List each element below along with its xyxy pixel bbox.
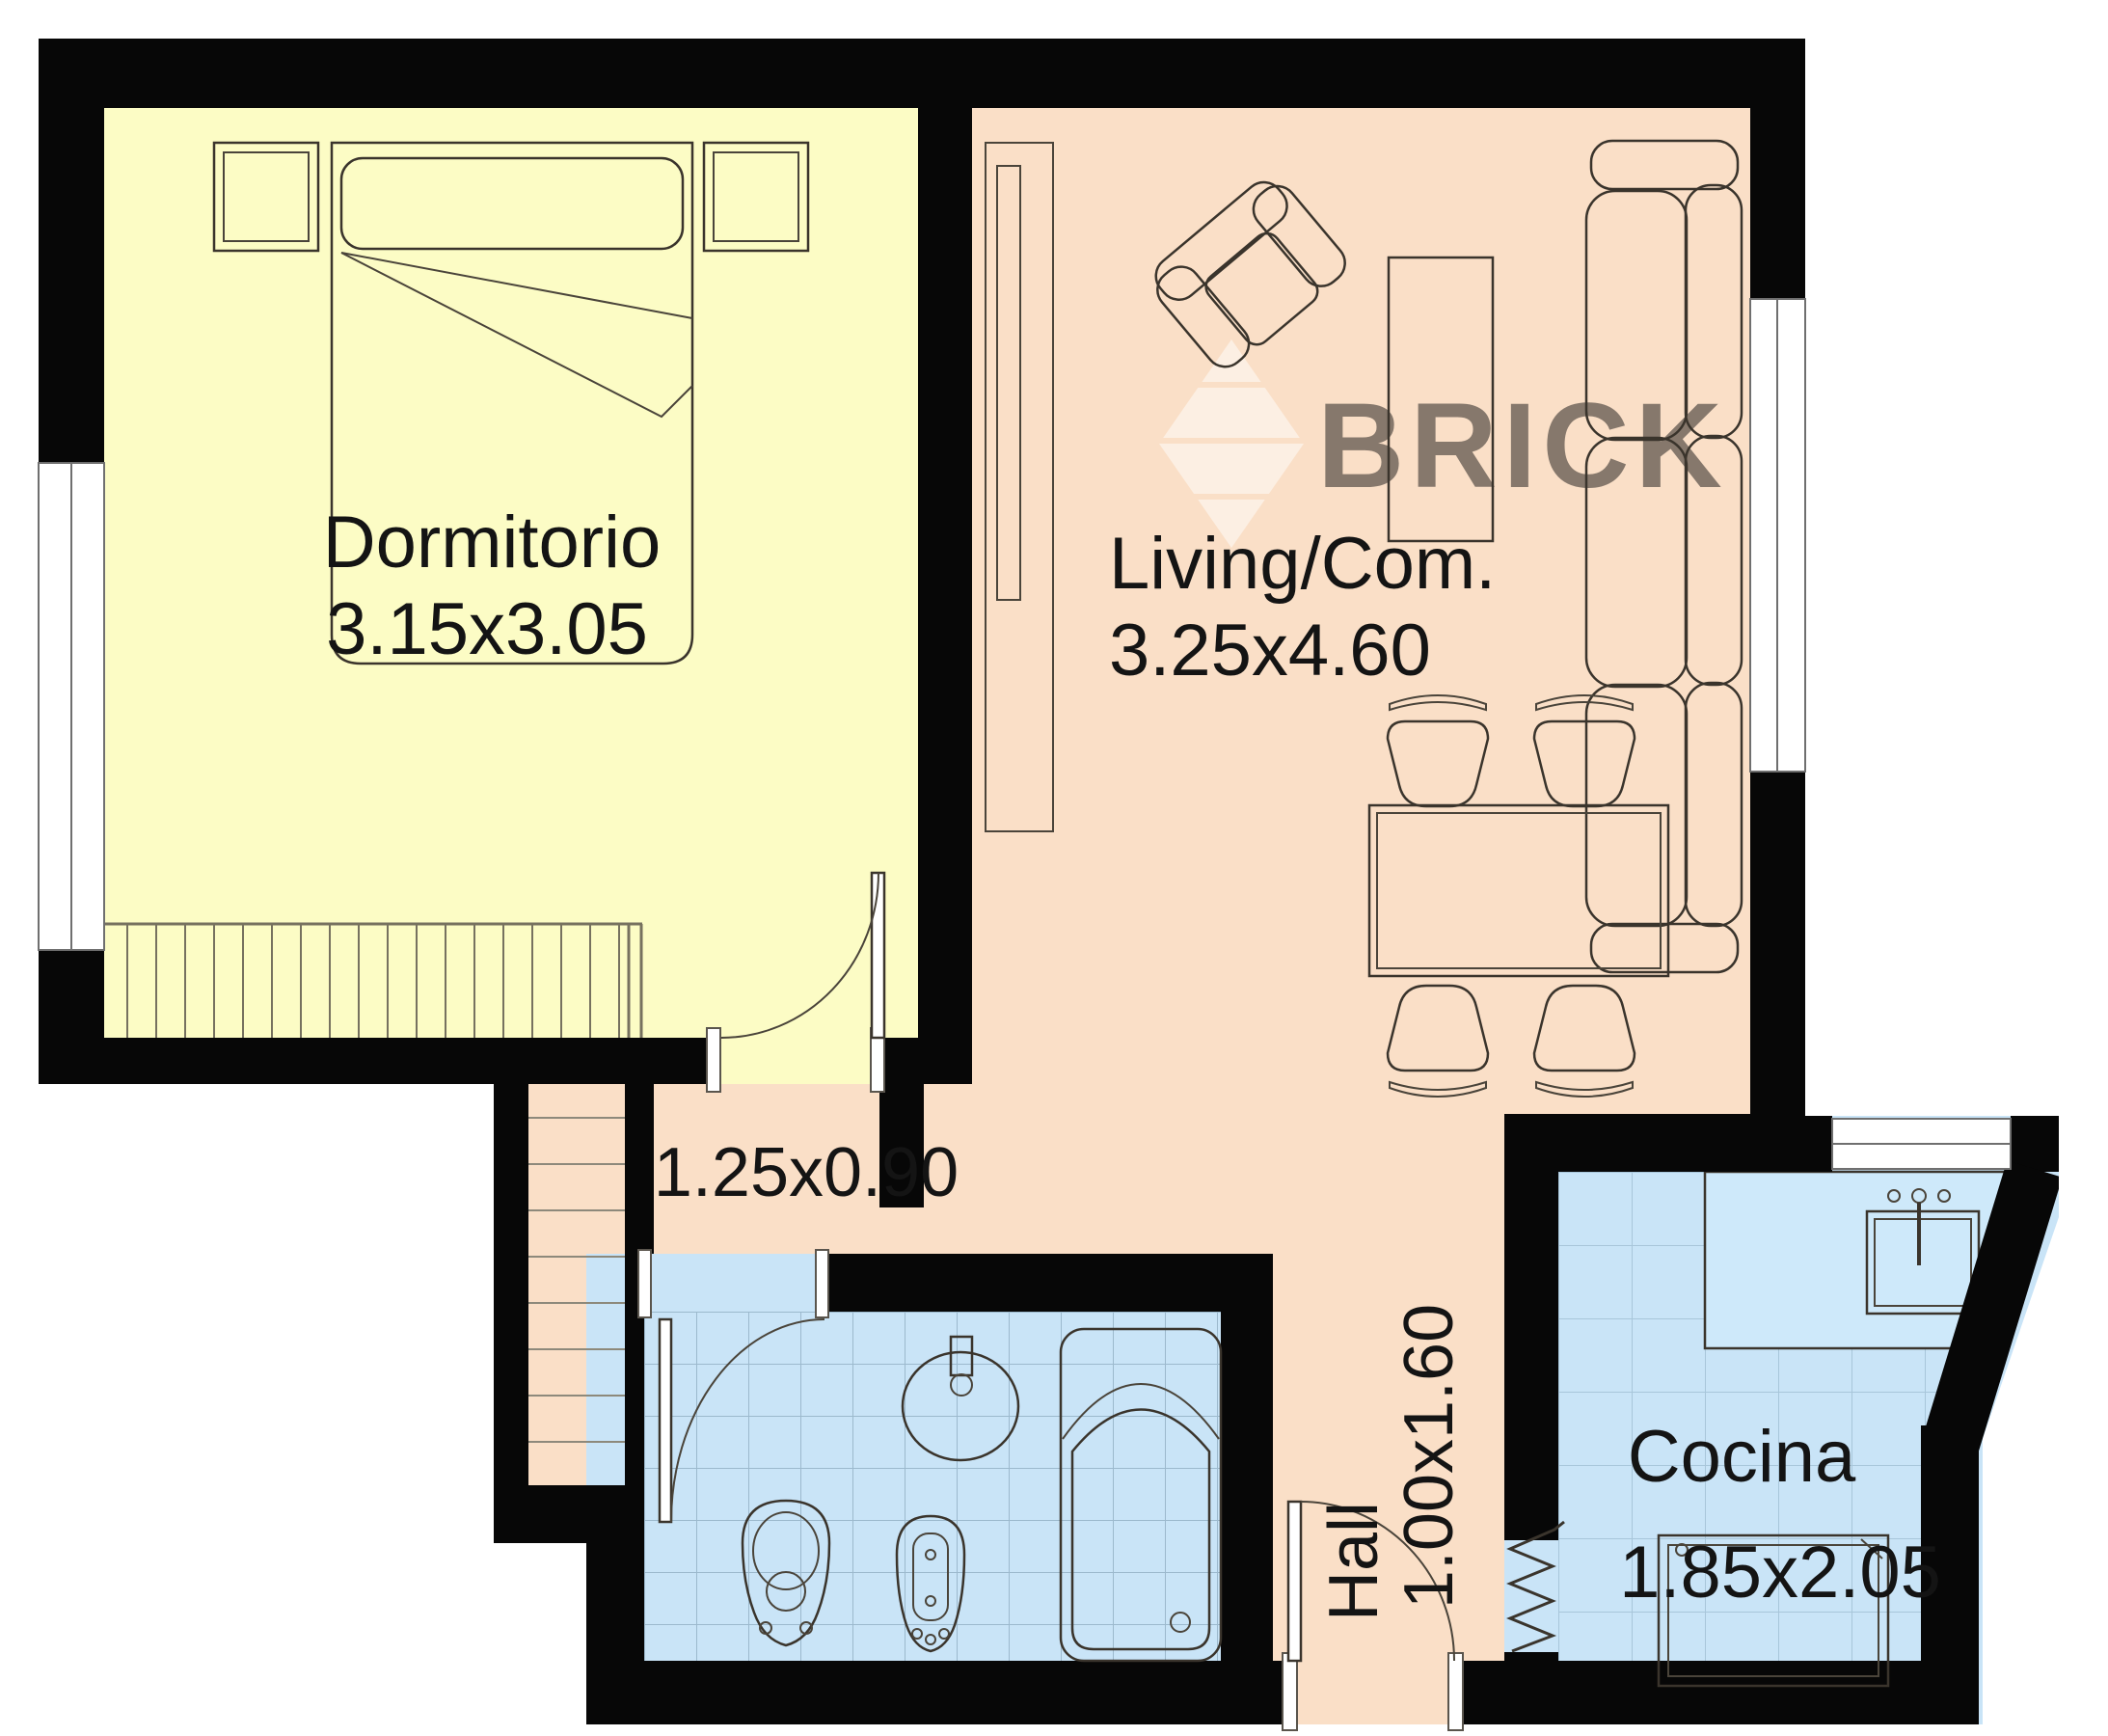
wall-bedroom-south-left (39, 1038, 714, 1084)
label-cocina: Cocina (1628, 1416, 1856, 1498)
brand-watermark-text: BRICK (1317, 379, 1728, 513)
wall-stair-bottom (494, 1485, 644, 1543)
wall-stair-bath (625, 1312, 644, 1485)
wall-bottom-left (586, 1661, 1288, 1724)
wall-bath-top (829, 1254, 1273, 1312)
wall-kitchen-left (1504, 1172, 1558, 1540)
label-hall: Hall (1315, 1502, 1392, 1621)
wall-left-upper (39, 108, 104, 463)
wall-kitchen-top-right (2011, 1114, 2059, 1172)
wall-kitchen-top-left (1504, 1114, 1832, 1172)
wall-bedroom-living (918, 108, 972, 1038)
label-dormitorio: Dormitorio (323, 502, 662, 583)
dims-living: 3.25x4.60 (1109, 610, 1431, 692)
floorplan-canvas: BRICK (0, 0, 2108, 1736)
window-kitchen (1832, 1119, 2011, 1169)
living-floor (906, 39, 1808, 1172)
bathroom-tile-grid (644, 1312, 1221, 1661)
wall-top (39, 39, 1808, 108)
wall-bedroom-south-right (878, 1038, 972, 1084)
closet (104, 924, 642, 1038)
window-living-right (1750, 299, 1805, 772)
window-bedroom-left (39, 463, 104, 950)
dims-passage: 1.25x0.90 (654, 1134, 959, 1211)
label-living: Living/Com. (1109, 523, 1496, 605)
dims-cocina: 1.85x2.05 (1619, 1532, 1941, 1614)
wall-right-lower (1750, 772, 1805, 1172)
wall-bath-right (1221, 1254, 1273, 1661)
wall-stair-left (494, 1072, 528, 1543)
dims-hall: 1.00x1.60 (1391, 1304, 1468, 1609)
stairs-steps (528, 1072, 625, 1487)
wall-bottom-right (1462, 1661, 1979, 1724)
dims-dormitorio: 3.15x3.05 (326, 588, 648, 670)
wall-stair-right (625, 1072, 654, 1254)
wall-right-upper (1750, 39, 1805, 299)
